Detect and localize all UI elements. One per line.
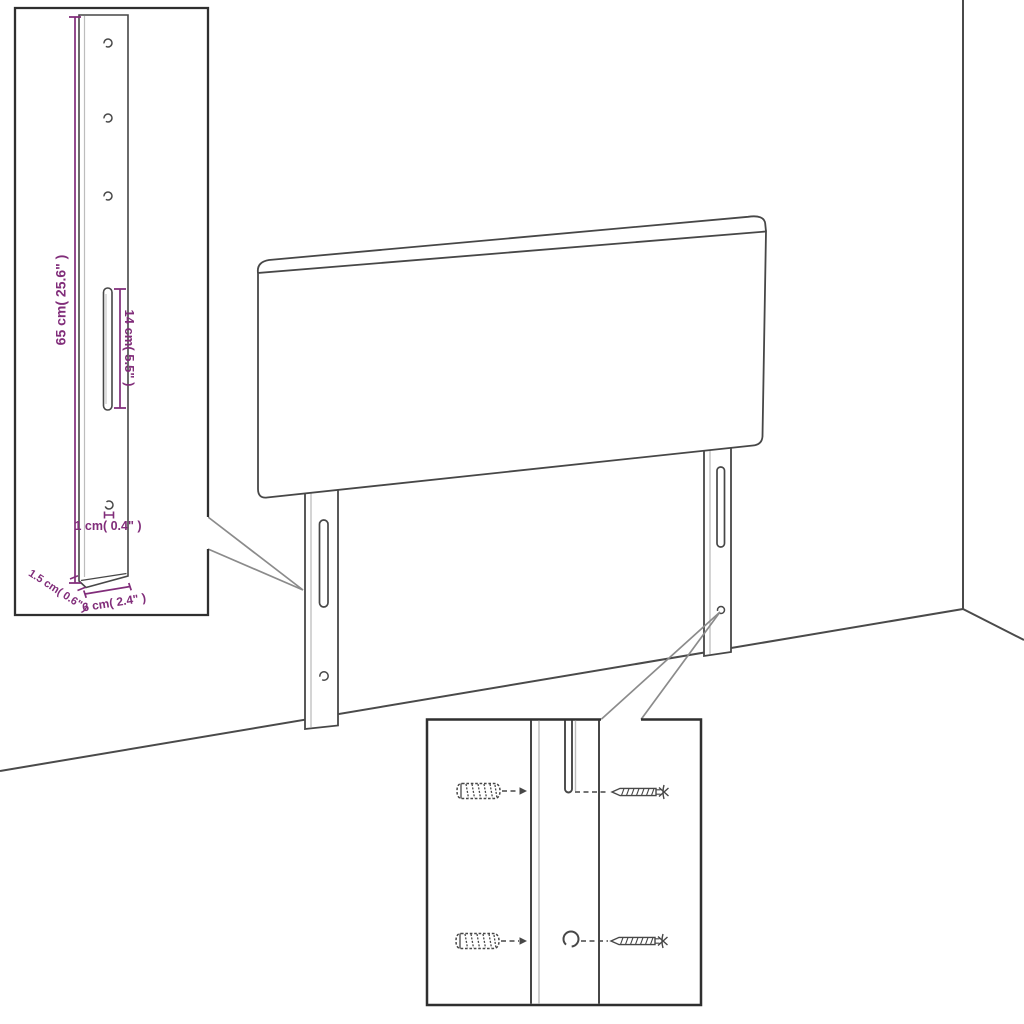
dimension-label-height: 65 cm( 25.6" ): [53, 255, 69, 346]
hardware-detail-inset: [427, 720, 701, 1006]
callout-lines-hardware-inset: [601, 612, 720, 720]
callout-line-top: [208, 517, 303, 590]
callout-line-right: [641, 612, 720, 720]
leg-bar-slot: [104, 288, 113, 410]
floor-line-right: [963, 609, 1024, 640]
diagram-stage: 65 cm( 25.6" ) 14 cm( 5.5" ) 1 cm( 0.4" …: [0, 0, 1024, 1024]
leg-dimension-inset: 65 cm( 25.6" ) 14 cm( 5.5" ) 1 cm( 0.4" …: [15, 8, 208, 615]
leg-details: [320, 467, 725, 680]
headboard: [258, 216, 766, 497]
dimension-label-hole-diameter: 1 cm( 0.4" ): [74, 519, 141, 533]
callout-line-bottom: [208, 549, 303, 590]
right-leg-slot: [717, 467, 725, 547]
headboard-dimension-diagram: 65 cm( 25.6" ) 14 cm( 5.5" ) 1 cm( 0.4" …: [0, 0, 1024, 1024]
callout-lines-leg-inset: [208, 517, 303, 590]
dimension-label-slot-length: 14 cm( 5.5" ): [122, 310, 137, 387]
hardware-box-border: [427, 720, 701, 1006]
callout-line-left: [601, 612, 720, 720]
headboard-panel: [258, 232, 766, 498]
left-leg-slot: [320, 520, 329, 607]
